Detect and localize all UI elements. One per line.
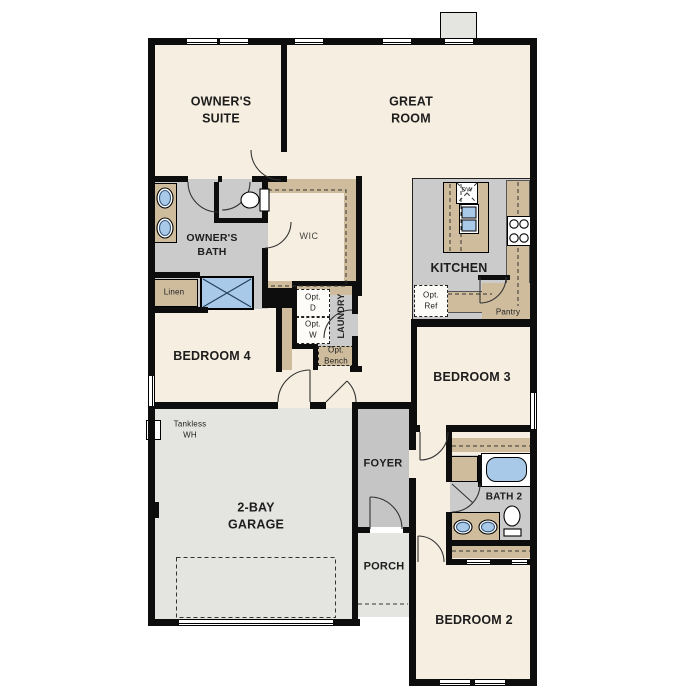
opt-ref-label: Opt. Ref xyxy=(423,290,439,311)
bath2-label: BATH 2 xyxy=(486,490,523,503)
window-marker xyxy=(475,679,505,686)
wall xyxy=(356,176,362,296)
hall-linen-closet xyxy=(450,456,478,482)
garage-label: 2-BAY GARAGE xyxy=(228,500,284,533)
porch-floor xyxy=(356,532,411,617)
wall xyxy=(411,327,417,427)
wall xyxy=(409,679,537,686)
tankless-wh-label: Tankless WH xyxy=(174,419,207,440)
wall xyxy=(214,182,219,222)
wall xyxy=(262,176,268,222)
window-marker xyxy=(187,38,217,45)
wall xyxy=(153,502,159,518)
wall xyxy=(446,432,452,482)
window-marker xyxy=(440,679,470,686)
bedroom3-label: BEDROOM 3 xyxy=(433,369,511,386)
wic-label: WIC xyxy=(300,231,319,243)
opt-washer-label: Opt. W xyxy=(305,319,321,340)
window-marker xyxy=(530,393,537,429)
bedroom4-label: BEDROOM 4 xyxy=(173,348,251,365)
foyer-label: FOYER xyxy=(364,457,403,472)
bathtub-basin xyxy=(486,457,527,482)
window-marker xyxy=(445,38,473,45)
bed3-closet-shelf xyxy=(450,438,532,452)
window-marker xyxy=(295,38,323,45)
wall xyxy=(490,559,512,565)
wall xyxy=(281,38,287,152)
pantry-label: Pantry xyxy=(496,308,520,319)
wall xyxy=(148,38,155,626)
owners-vanity-counter xyxy=(153,183,177,243)
bedroom2-label: BEDROOM 2 xyxy=(435,612,513,629)
wall xyxy=(350,366,362,372)
floor-plan: OWNER'S SUITE GREAT ROOM OWNER'S BATH WI… xyxy=(0,0,687,687)
wall xyxy=(446,425,532,432)
hall-shelf-strip xyxy=(282,300,292,370)
bath2-vanity-counter xyxy=(450,512,500,542)
closet-door-marker xyxy=(467,559,490,565)
hall-opening xyxy=(409,450,416,478)
owners-linen-label: Linen xyxy=(164,288,185,299)
front-door-opening xyxy=(370,527,403,533)
wall xyxy=(446,512,452,565)
wall xyxy=(403,527,416,533)
porch-label: PORCH xyxy=(364,560,405,575)
wall xyxy=(292,286,297,346)
great-room-label: GREAT ROOM xyxy=(389,94,433,127)
wall xyxy=(148,307,208,313)
shower xyxy=(200,276,254,310)
wall xyxy=(354,527,370,533)
wall xyxy=(352,336,358,368)
wall xyxy=(409,402,416,682)
closet-door-marker xyxy=(512,559,527,565)
opt-dryer-label: Opt. D xyxy=(305,292,321,313)
wall xyxy=(292,281,358,286)
wall xyxy=(276,298,282,372)
wall xyxy=(313,344,318,370)
wall xyxy=(411,319,532,327)
wall xyxy=(148,176,188,182)
laundry-label: LAUNDRY xyxy=(336,293,348,338)
wall xyxy=(527,559,532,565)
dw-label: DW xyxy=(461,187,472,196)
wall xyxy=(530,38,537,686)
wall xyxy=(148,402,278,409)
window-marker xyxy=(220,38,248,45)
wall xyxy=(411,425,420,432)
wall xyxy=(446,540,532,546)
wall xyxy=(354,402,416,409)
window-marker xyxy=(148,376,155,406)
wall xyxy=(446,559,467,565)
wall xyxy=(148,272,200,278)
opt-bench-label: Opt. Bench xyxy=(324,345,348,366)
wall xyxy=(214,218,268,223)
wall xyxy=(310,402,326,409)
bed2-closet-shelf xyxy=(450,544,532,558)
garage-door-marker xyxy=(179,619,333,626)
wall xyxy=(252,176,287,182)
wall xyxy=(478,455,482,487)
window-marker xyxy=(383,38,411,45)
wall xyxy=(352,402,358,626)
owners-bath-label: OWNER'S BATH xyxy=(186,232,237,260)
owners-suite-label: OWNER'S SUITE xyxy=(191,94,252,127)
kitchen-label: KITCHEN xyxy=(431,260,488,277)
island-sink-box xyxy=(459,204,479,234)
